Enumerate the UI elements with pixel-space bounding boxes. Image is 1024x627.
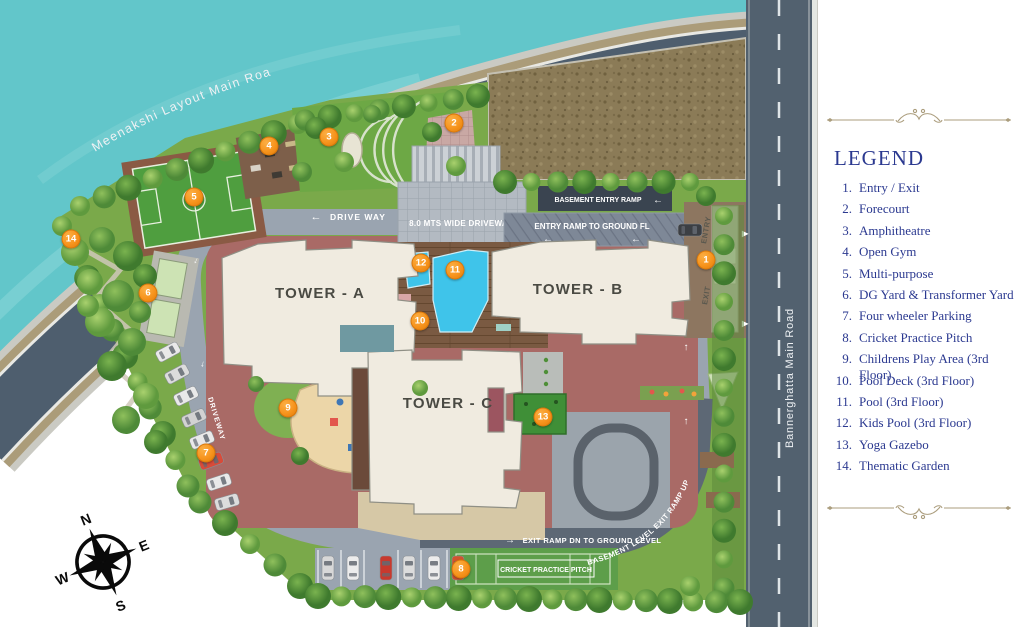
- wide-driveway-label: 8.0 MTS WIDE DRIVEWAY: [409, 219, 513, 228]
- legend-item: 8.Cricket Practice Pitch: [826, 330, 1020, 351]
- legend-panel: LEGEND 1.Entry / Exit 2.Forecourt 3.Amph…: [826, 146, 1020, 479]
- map-marker-5: 5: [185, 188, 204, 207]
- flourish-top: [824, 106, 1014, 132]
- map-marker-7: 7: [197, 444, 216, 463]
- map-marker-13: 13: [534, 408, 553, 427]
- legend-item: 4.Open Gym: [826, 244, 1020, 265]
- map-marker-2: 2: [445, 114, 464, 133]
- map-marker-10: 10: [411, 312, 430, 331]
- arrow-right-icon: →: [505, 535, 515, 546]
- drive-way-label: DRIVE WAY: [330, 212, 386, 222]
- compass-e: E: [136, 536, 151, 554]
- map-marker-9: 9: [279, 399, 298, 418]
- cricket-pitch: CRICKET PRACTICE PITCH: [448, 548, 618, 590]
- arrow-left-icon: ←: [311, 211, 322, 223]
- legend-item: 11.Pool (3rd Floor): [826, 394, 1020, 415]
- arrow-left-icon: ←: [631, 234, 641, 245]
- flourish-bottom: [824, 496, 1014, 522]
- legend-item: 6.DG Yard & Transformer Yard: [826, 287, 1020, 308]
- cricket-pitch-label: CRICKET PRACTICE PITCH: [500, 567, 592, 574]
- parking-structure: [552, 412, 670, 528]
- svg-text:ENTRY RAMP TO GROUND FL: ENTRY RAMP TO GROUND FL: [534, 222, 649, 231]
- compass-n: N: [78, 510, 93, 529]
- map-marker-1: 1: [697, 251, 716, 270]
- compass-rose: N E S W: [36, 494, 169, 627]
- map-marker-3: 3: [320, 128, 339, 147]
- map-marker-11: 11: [446, 261, 465, 280]
- legend-item: 7.Four wheeler Parking: [826, 308, 1020, 329]
- site-plan-page: Bannerghatta Main Road Meenakshi Layout …: [0, 0, 1024, 627]
- tower-b-label: TOWER - B: [533, 281, 624, 298]
- bannerghatta-road: Bannerghatta Main Road: [746, 0, 812, 627]
- arrow-left-icon: ←: [653, 195, 663, 206]
- legend-item: 13.Yoga Gazebo: [826, 437, 1020, 458]
- podium-roof-teal: [340, 325, 394, 352]
- map-marker-4: 4: [260, 137, 279, 156]
- map-marker-14: 14: [62, 230, 81, 249]
- legend-item: 2.Forecourt: [826, 201, 1020, 222]
- legend-item: 12.Kids Pool (3rd Floor): [826, 415, 1020, 436]
- panel-divider: [817, 0, 818, 627]
- legend-title: LEGEND: [834, 146, 1020, 171]
- legend-list: 1.Entry / Exit 2.Forecourt 3.Amphitheatr…: [826, 180, 1020, 479]
- tower-a-label: TOWER - A: [275, 285, 365, 302]
- compass-s: S: [113, 596, 128, 614]
- arrow-up-icon: ↑: [684, 416, 689, 427]
- map-marker-8: 8: [452, 560, 471, 579]
- compass-w: W: [53, 568, 72, 588]
- legend-item: 9.Childrens Play Area (3rd Floor): [826, 351, 1020, 372]
- legend-item: 3.Amphitheatre: [826, 223, 1020, 244]
- map-marker-6: 6: [139, 284, 158, 303]
- arrow-up-icon: ↑: [684, 342, 689, 353]
- svg-text:BASEMENT ENTRY RAMP: BASEMENT ENTRY RAMP: [554, 197, 641, 204]
- legend-item: 5.Multi-purpose: [826, 266, 1020, 287]
- bannerghatta-road-label: Bannerghatta Main Road: [784, 308, 796, 448]
- legend-item: 1.Entry / Exit: [826, 180, 1020, 201]
- tower-c-label: TOWER - C: [403, 395, 494, 412]
- legend-item: 14.Thematic Garden: [826, 458, 1020, 479]
- map-marker-12: 12: [412, 254, 431, 273]
